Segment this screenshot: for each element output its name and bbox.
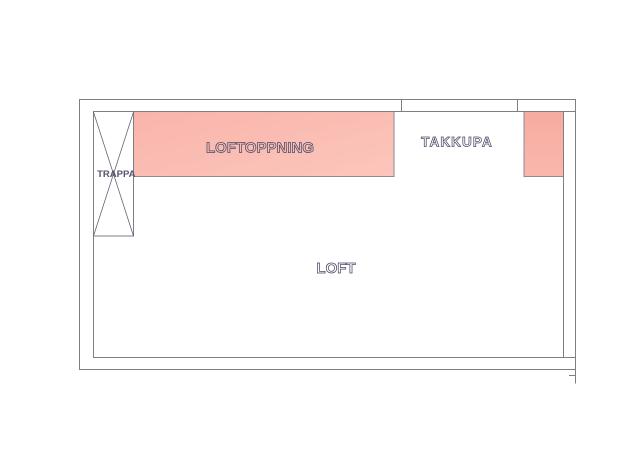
svg-text:TAKKUPA: TAKKUPA xyxy=(421,135,493,150)
svg-text:TRAPPA: TRAPPA xyxy=(97,169,135,180)
svg-text:LOFTOPPNING: LOFTOPPNING xyxy=(206,140,314,157)
svg-text:LOFT: LOFT xyxy=(316,260,355,277)
